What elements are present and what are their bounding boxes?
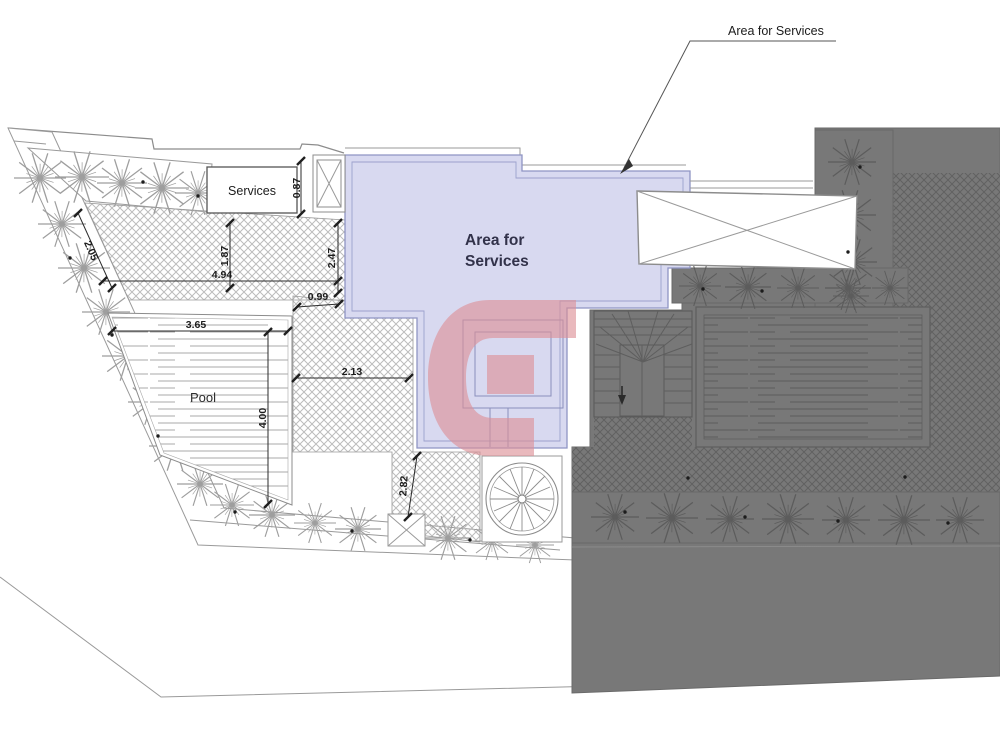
annotation-label: Area for Services: [728, 24, 824, 38]
svg-text:Services: Services: [465, 253, 529, 270]
svg-text:4.00: 4.00: [257, 408, 269, 429]
crossed-rectangle: [637, 191, 857, 269]
svg-text:0.99: 0.99: [308, 291, 329, 303]
svg-text:4.94: 4.94: [212, 269, 233, 281]
svg-text:2.82: 2.82: [397, 475, 410, 496]
services-crossed-box: [313, 155, 345, 212]
svg-text:Area for: Area for: [465, 232, 524, 249]
svg-text:3.65: 3.65: [186, 319, 207, 331]
svg-text:0.87: 0.87: [291, 178, 303, 199]
terrace-hatch-upper: [85, 203, 345, 300]
spiral-stair-circle: [482, 456, 562, 542]
svg-text:2.13: 2.13: [342, 366, 363, 378]
services-room-label: Services: [228, 184, 276, 198]
dark-pool: [696, 307, 930, 447]
svg-text:2.47: 2.47: [326, 248, 338, 269]
pool-label: Pool: [190, 390, 216, 405]
services-room: Services: [207, 167, 297, 213]
dark-hatch-band: [572, 447, 1000, 492]
site-plan-drawing: Services: [0, 0, 1000, 750]
svg-text:1.87: 1.87: [219, 246, 231, 267]
stair: [594, 311, 692, 417]
